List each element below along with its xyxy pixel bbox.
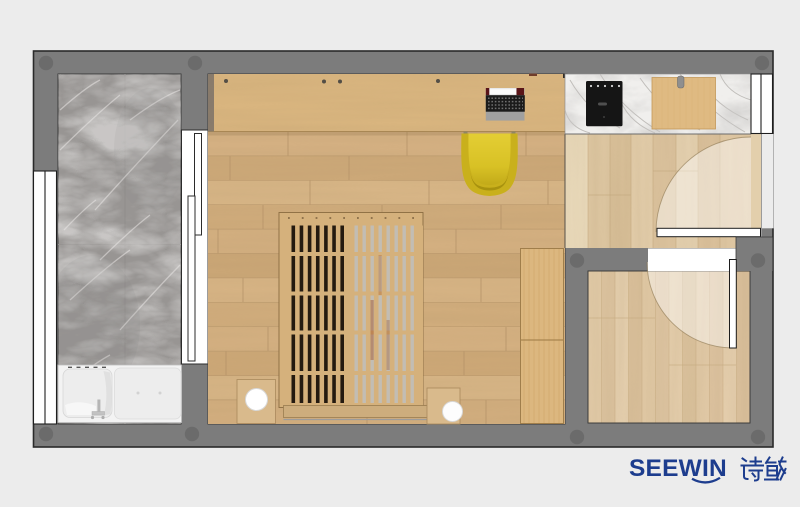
svg-text:SEEWIN: SEEWIN (629, 455, 727, 482)
